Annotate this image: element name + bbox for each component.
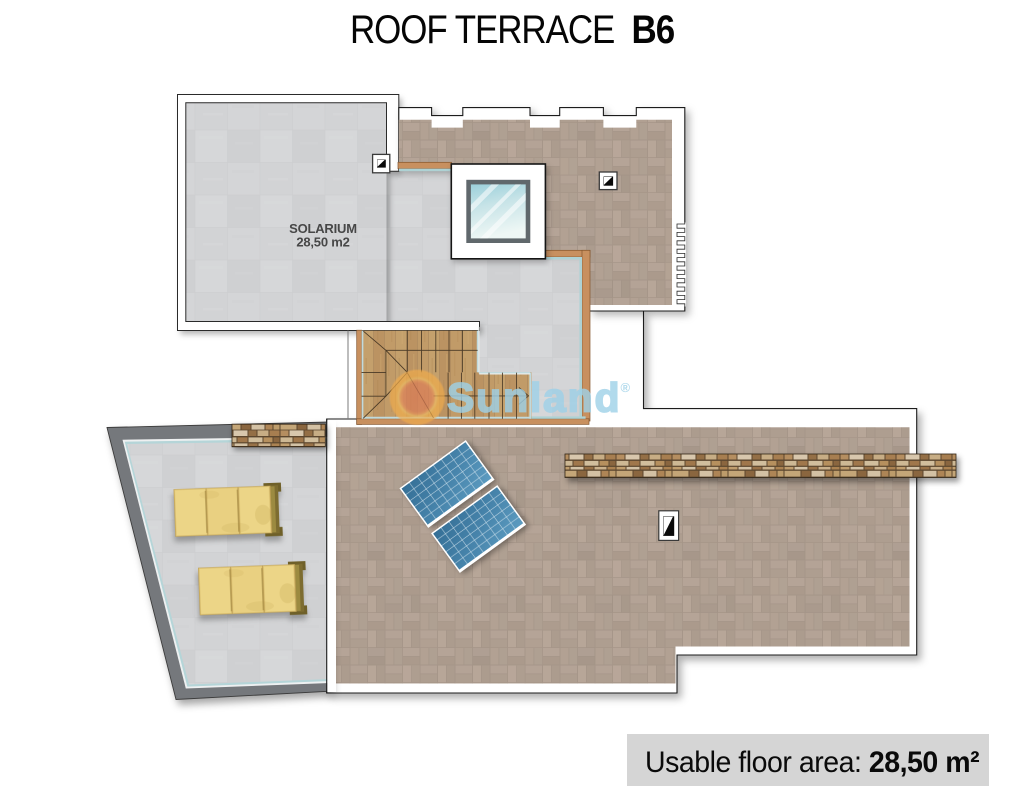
svg-text:Sunland: Sunland [447, 375, 621, 421]
svg-text:28,50 m2: 28,50 m2 [296, 235, 349, 250]
svg-text:®: ® [621, 380, 631, 395]
